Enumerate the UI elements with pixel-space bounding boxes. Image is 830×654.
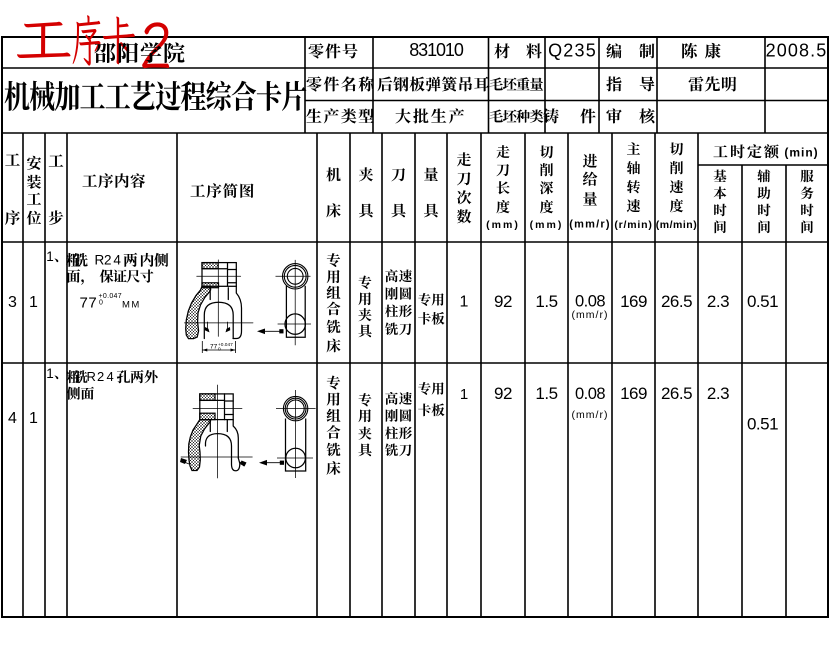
svg-text:(mm/r): (mm/r) [572, 409, 609, 421]
svg-text:831010: 831010 [409, 40, 464, 60]
svg-text:1: 1 [46, 249, 54, 264]
svg-text:0: 0 [99, 300, 103, 307]
svg-text:R: R [95, 253, 105, 268]
svg-text:1: 1 [460, 386, 468, 403]
svg-text:4: 4 [113, 253, 121, 268]
svg-text:3: 3 [8, 294, 17, 311]
svg-text:0: 0 [218, 347, 221, 353]
svg-text:2: 2 [97, 369, 104, 384]
svg-text:MM: MM [122, 300, 141, 311]
svg-text:2.3: 2.3 [707, 384, 729, 403]
svg-text:(min): (min) [784, 146, 818, 160]
svg-text:77: 77 [210, 344, 218, 351]
svg-text:1.5: 1.5 [535, 384, 557, 403]
svg-text:92: 92 [494, 384, 512, 403]
svg-text:0.51: 0.51 [747, 415, 778, 434]
svg-text:(mm/r): (mm/r) [572, 309, 609, 321]
svg-text:2008.5: 2008.5 [766, 41, 828, 61]
svg-text:1: 1 [46, 366, 54, 381]
svg-text:1: 1 [29, 294, 38, 311]
svg-text:R: R [87, 369, 96, 384]
svg-text:(m/min): (m/min) [656, 219, 697, 231]
svg-text:77: 77 [80, 295, 98, 312]
svg-text:169: 169 [620, 292, 647, 311]
svg-text:0.51: 0.51 [747, 292, 778, 311]
svg-text:1.5: 1.5 [535, 292, 557, 311]
svg-text:4: 4 [8, 410, 17, 427]
svg-text:Q235: Q235 [548, 41, 597, 61]
svg-text:169: 169 [620, 384, 647, 403]
svg-text:(r/min): (r/min) [614, 219, 652, 231]
svg-text:2.3: 2.3 [707, 292, 729, 311]
svg-text:92: 92 [494, 292, 512, 311]
svg-text:(mm): (mm) [486, 219, 520, 231]
svg-text:0.08: 0.08 [575, 385, 605, 403]
svg-text:0.08: 0.08 [575, 293, 605, 311]
svg-text:4: 4 [107, 369, 114, 384]
svg-text:26.5: 26.5 [661, 292, 692, 311]
svg-text:1: 1 [29, 410, 38, 427]
svg-text:2: 2 [104, 253, 112, 268]
svg-text:1: 1 [460, 294, 469, 311]
svg-text:(mm/r): (mm/r) [569, 219, 610, 231]
svg-text:26.5: 26.5 [661, 384, 692, 403]
svg-text:(mm): (mm) [530, 219, 564, 231]
